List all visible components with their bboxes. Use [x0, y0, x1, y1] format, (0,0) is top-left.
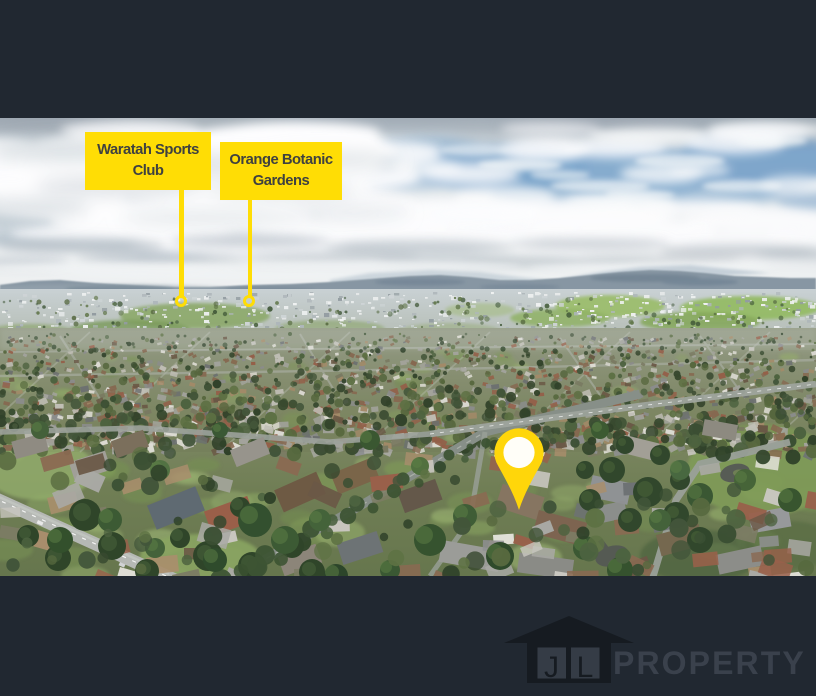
svg-text:J: J	[544, 651, 559, 684]
svg-text:PROPERTY: PROPERTY	[613, 645, 806, 681]
svg-text:L: L	[577, 651, 594, 684]
